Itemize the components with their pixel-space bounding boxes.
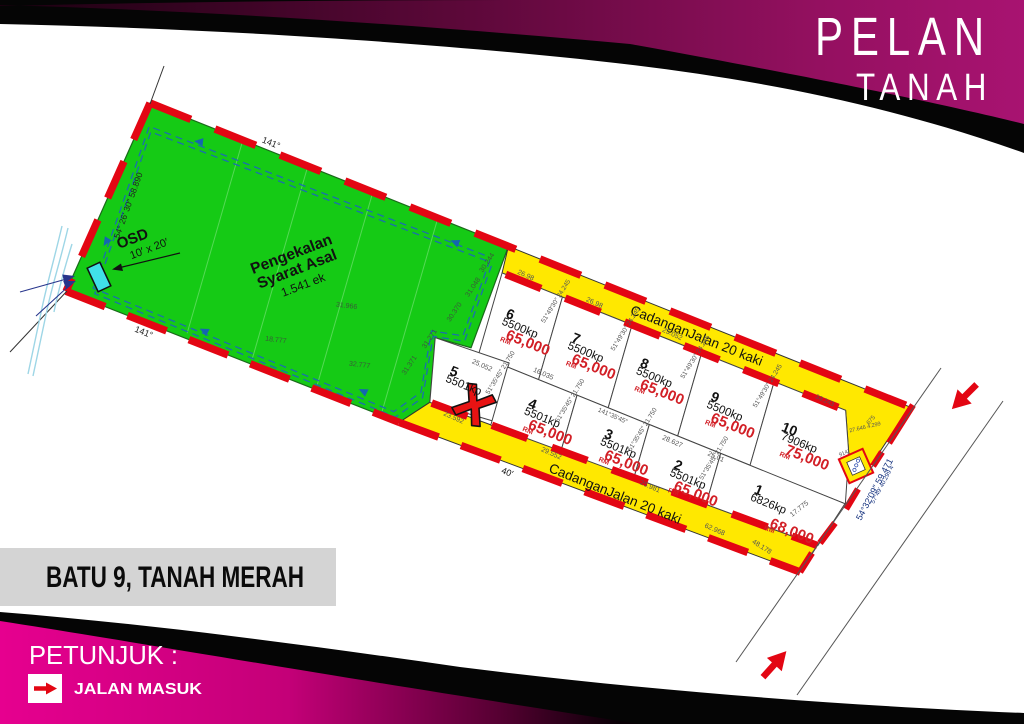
svg-text:PELAN: PELAN	[815, 7, 992, 67]
svg-text:BATU 9, TANAH MERAH: BATU 9, TANAH MERAH	[46, 561, 304, 594]
svg-text:PETUNJUK :: PETUNJUK :	[29, 640, 178, 670]
svg-text:TANAH: TANAH	[856, 67, 993, 109]
svg-text:JALAN MASUK: JALAN MASUK	[74, 681, 202, 698]
